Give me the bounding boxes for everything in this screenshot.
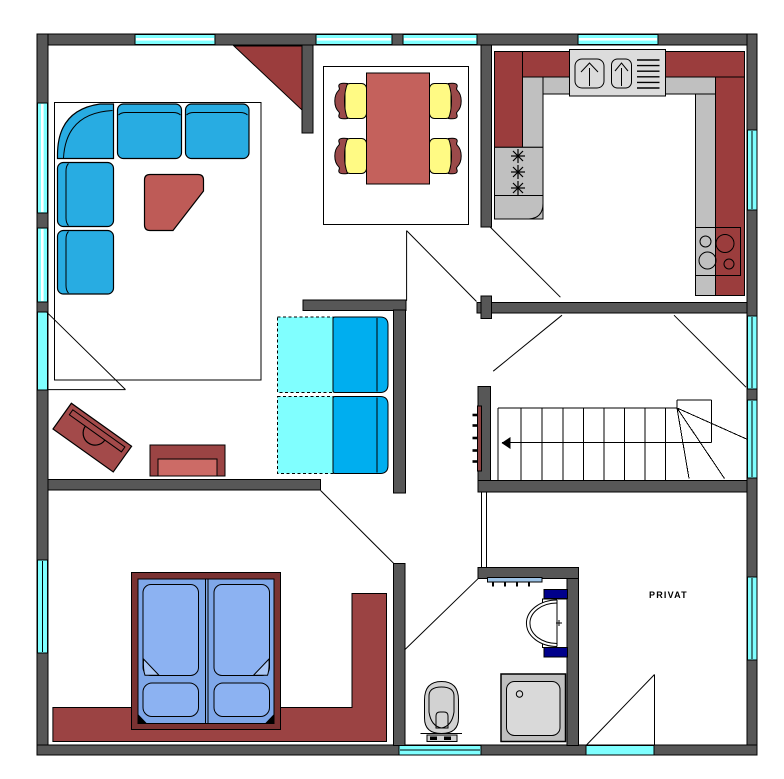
svg-text:PRIVAT: PRIVAT — [649, 590, 688, 600]
